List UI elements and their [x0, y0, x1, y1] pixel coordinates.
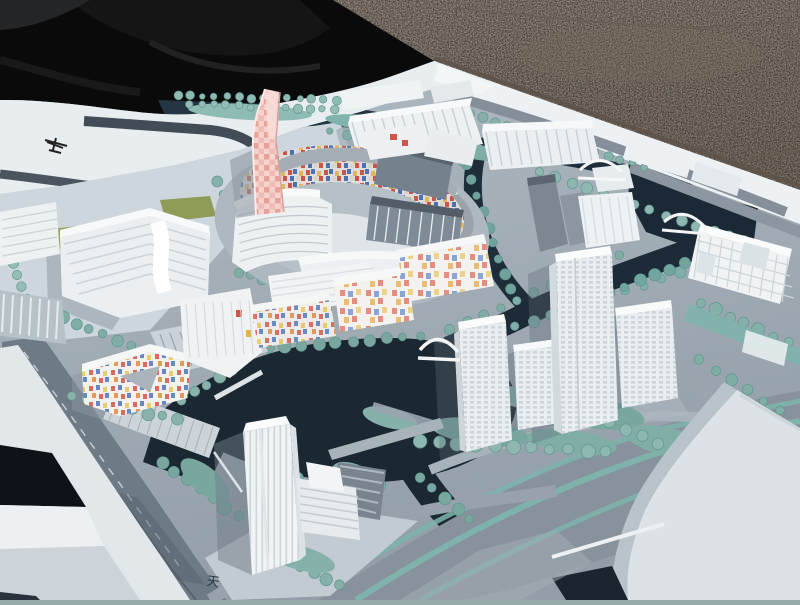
svg-text:天: 天 — [206, 573, 221, 590]
